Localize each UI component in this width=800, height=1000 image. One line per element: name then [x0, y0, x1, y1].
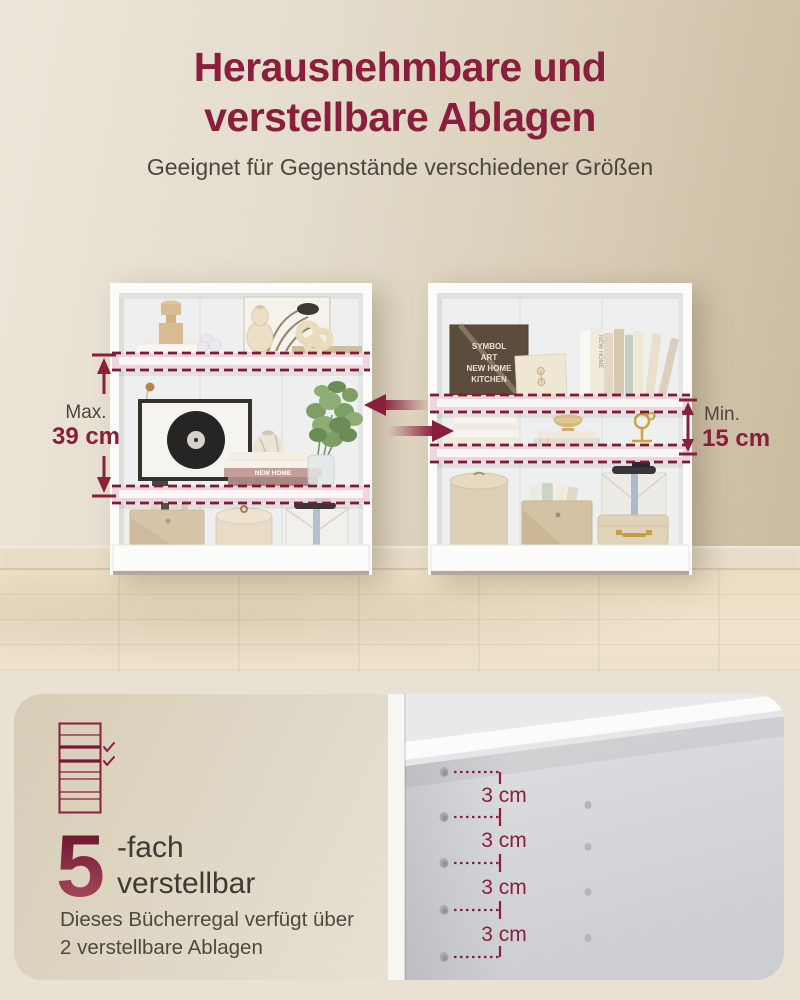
spacing-label: 3 cm	[481, 876, 527, 899]
box-text-line: NEW HOME	[467, 364, 513, 373]
min-value: 15 cm	[702, 425, 770, 452]
paper-envelope	[515, 354, 567, 397]
round-box	[216, 506, 272, 545]
highlighted-shelf-2	[112, 486, 370, 503]
right-bookcase-photo: SYMBOL ART NEW HOME KITCHEN NEW HOME	[428, 283, 692, 583]
spacing-label: 3 cm	[481, 784, 527, 807]
suitcase-box	[598, 515, 668, 545]
header: Herausnehmbare und verstellbare Ablagen …	[0, 42, 800, 181]
feature-description-line-2: 2 verstellbare Ablagen	[60, 936, 263, 959]
highlighted-shelf-2	[430, 445, 690, 462]
cylinder-box	[450, 473, 508, 545]
shelf-holes-photo: 3 cm 3 cm 3 cm 3 cm	[388, 694, 784, 980]
max-height-measure: Max. 39 cm	[42, 352, 126, 500]
box-text-line: SYMBOL	[472, 342, 506, 351]
arrow-left-icon	[364, 394, 430, 416]
book-spine-text: NEW HOME	[255, 470, 292, 477]
flat-book-stack	[446, 417, 522, 445]
max-value: 39 cm	[52, 423, 120, 450]
title-line-2: verstellbare Ablagen	[0, 92, 800, 142]
check-icon	[104, 743, 114, 765]
highlighted-shelf-1	[430, 395, 690, 412]
highlighted-shelf-1	[112, 353, 370, 370]
arrow-right-icon	[388, 420, 454, 442]
max-label: Max.	[65, 402, 106, 423]
box-text-line: KITCHEN	[471, 375, 507, 384]
box-text-line: ART	[481, 353, 498, 362]
left-bookcase-photo: NEW HOME	[110, 283, 372, 583]
feature-card: 5 -fach verstellbar Dieses Bücherregal v…	[14, 694, 784, 980]
min-label: Min.	[704, 404, 740, 425]
feature-count: 5	[56, 826, 105, 907]
product-infographic: Herausnehmbare und verstellbare Ablagen …	[0, 0, 800, 1000]
spacing-label: 3 cm	[481, 829, 527, 852]
feature-suffix-line-2: verstellbar	[117, 866, 255, 902]
feature-panel: 5 -fach verstellbar Dieses Bücherregal v…	[14, 694, 388, 980]
feature-description: Dieses Bücherregal verfügt über 2 verste…	[60, 906, 354, 961]
side-panel-edge	[388, 694, 405, 980]
spacing-label: 3 cm	[481, 923, 527, 946]
feature-suffix: -fach verstellbar	[117, 830, 255, 902]
title-line-1: Herausnehmbare und	[0, 42, 800, 92]
feature-description-line-1: Dieses Bücherregal verfügt über	[60, 908, 354, 931]
swap-arrows	[362, 392, 456, 444]
min-height-measure: Min. 15 cm	[678, 396, 778, 458]
page-title: Herausnehmbare und verstellbare Ablagen	[0, 42, 800, 142]
book-spine-text: NEW HOME	[597, 335, 603, 369]
feature-suffix-line-1: -fach	[117, 830, 255, 866]
feature-headline: 5 -fach verstellbar	[56, 826, 255, 907]
vertical-measure-arrow-icon	[679, 400, 697, 454]
adjustable-shelf-icon	[58, 722, 116, 816]
page-subtitle: Geeignet für Gegenstände verschiedener G…	[0, 154, 800, 181]
book-stack: NEW HOME	[224, 452, 322, 486]
wood-floor	[0, 570, 800, 672]
